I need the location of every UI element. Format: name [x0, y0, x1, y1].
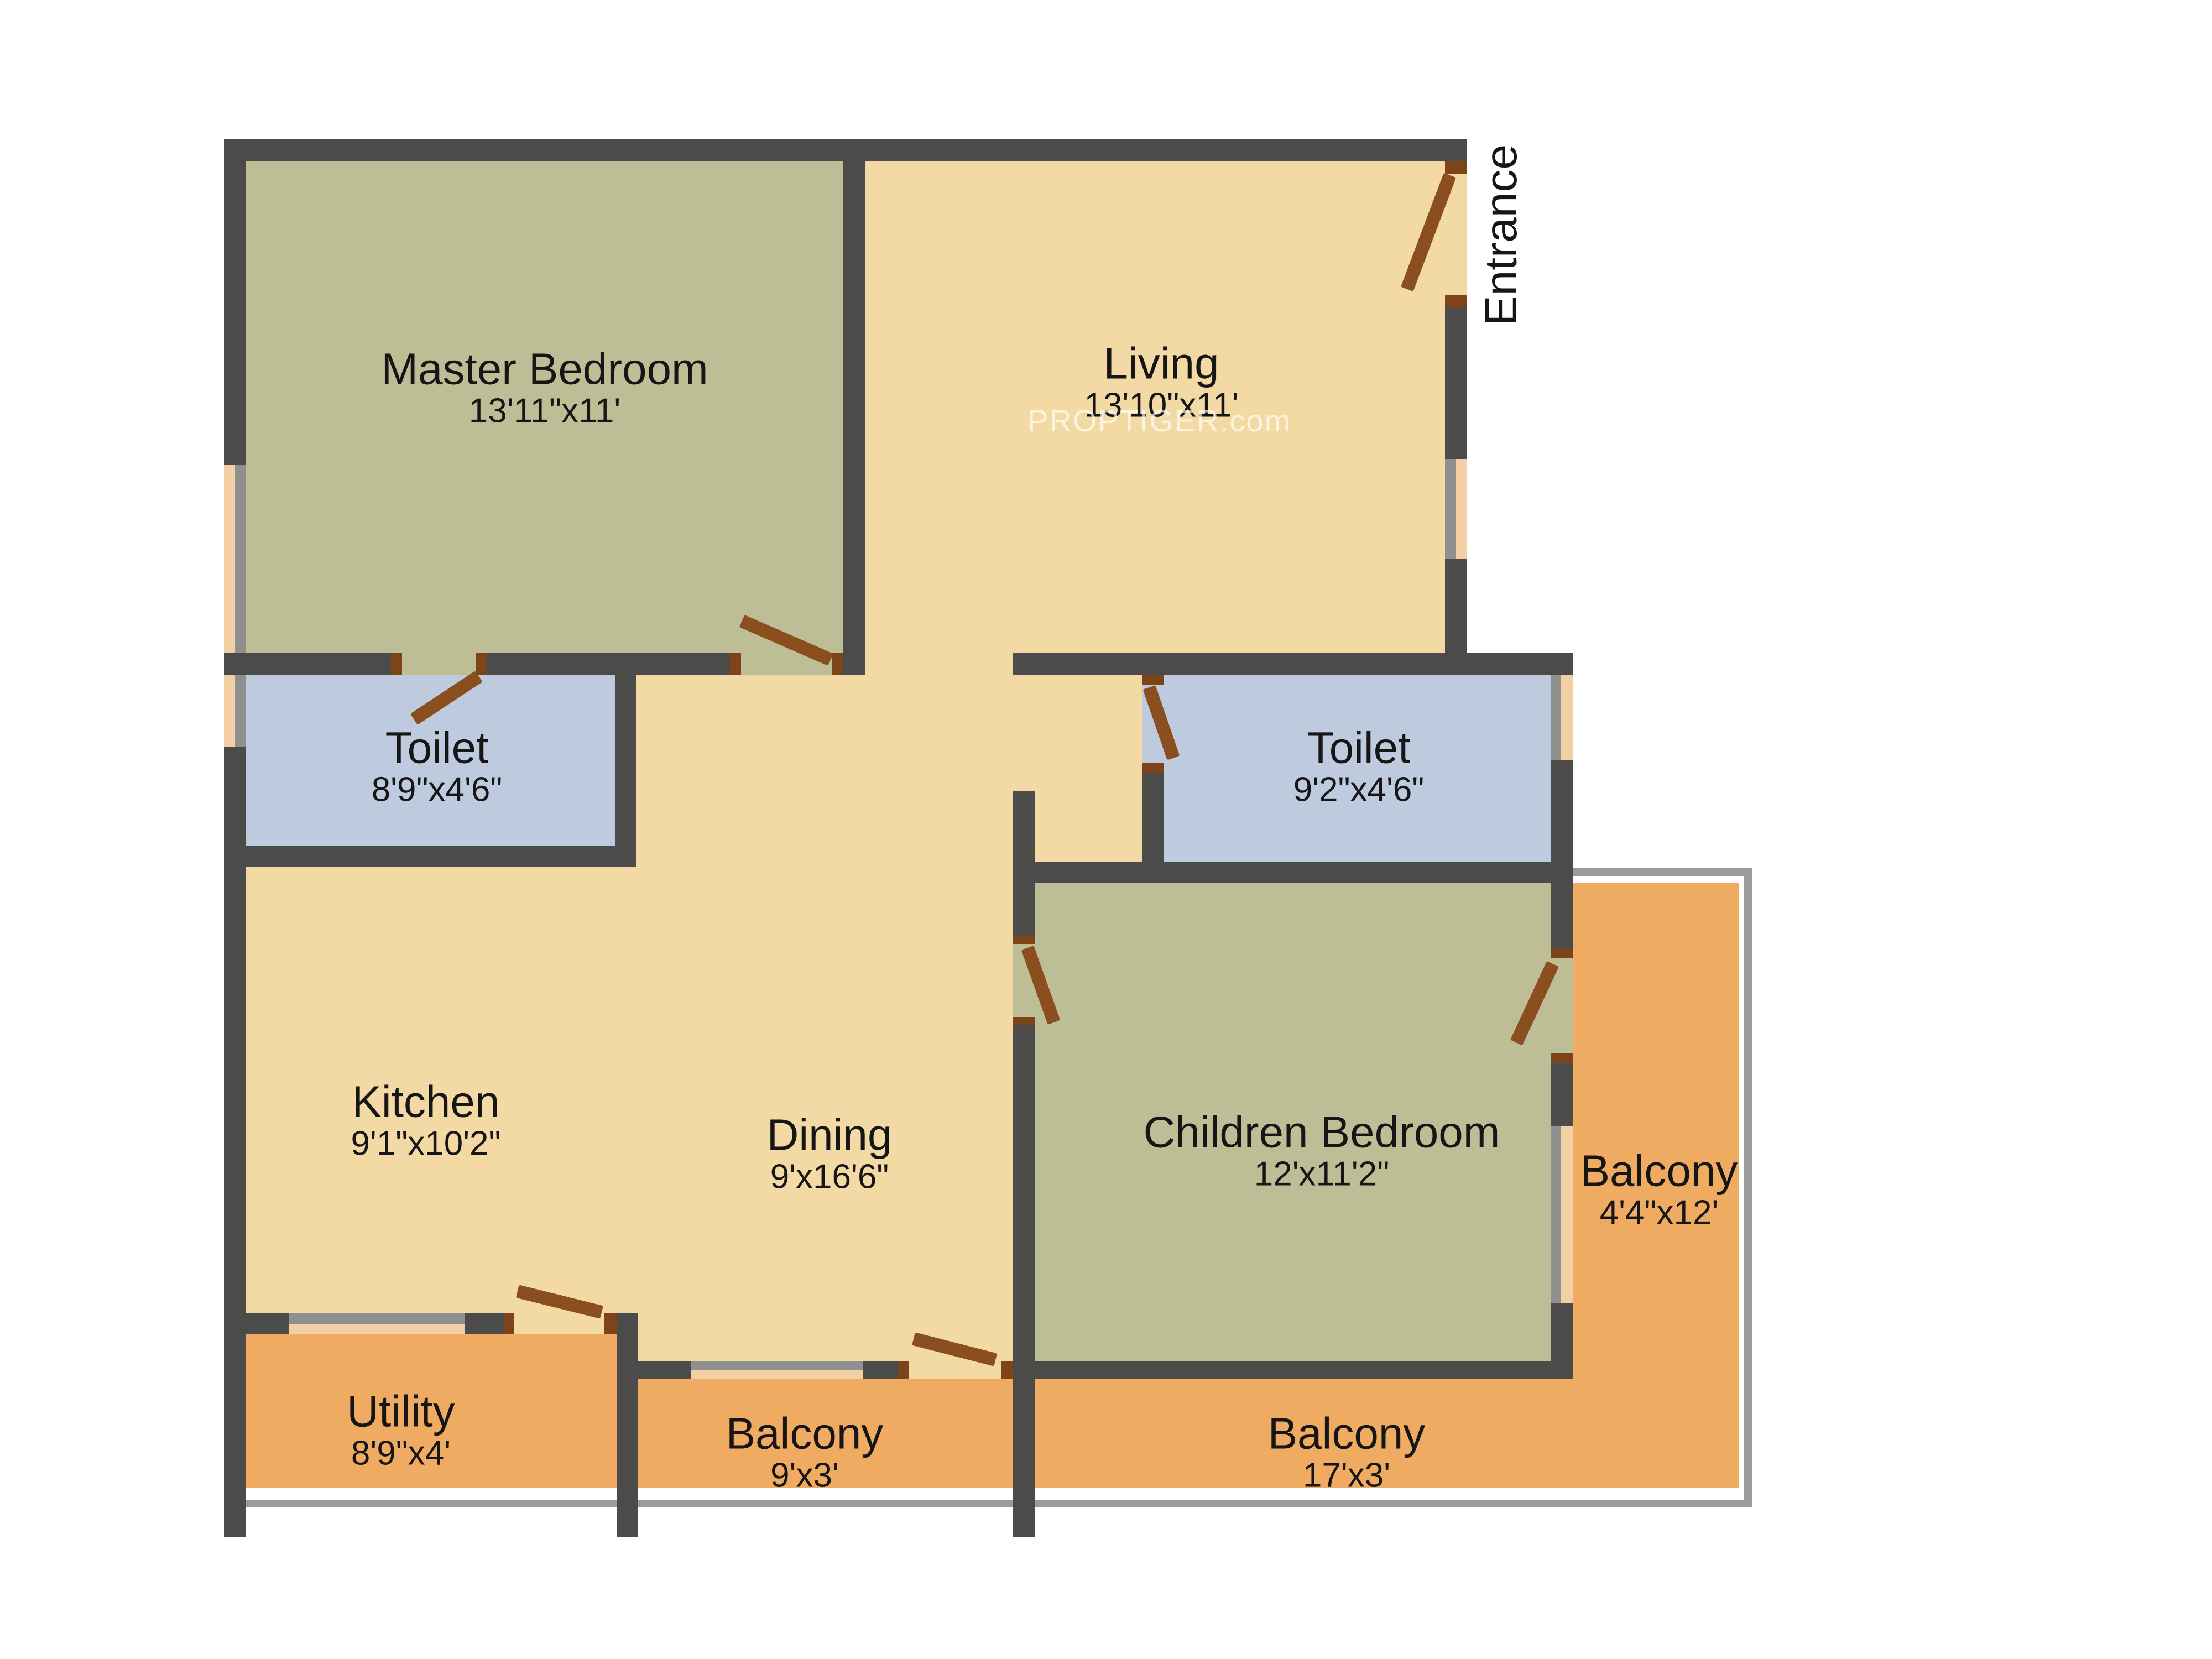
wall-toilet-right-bottom: [1013, 862, 1573, 883]
window-balcony-mid-inner: [691, 1361, 863, 1370]
wall-toilet-right-right: [1551, 760, 1573, 862]
jamb-master-b: [832, 653, 843, 675]
window-master-left-inner: [235, 465, 246, 653]
jamb-entrance-b: [1445, 295, 1467, 307]
railing-right: [1744, 868, 1752, 1507]
wall-master-bottom-b: [487, 653, 730, 675]
jamb-entrance-a: [1445, 161, 1467, 174]
window-master-left-outer: [224, 465, 235, 653]
window-toilet-right-inner: [1551, 675, 1561, 760]
label-toilet-right: Toilet 9'2"x4'6": [1293, 724, 1425, 807]
label-master-bedroom: Master Bedroom 13'11"x11': [381, 345, 708, 429]
window-living-right-inner: [1445, 459, 1456, 559]
railing-bottom: [224, 1500, 1752, 1507]
wall-toilet-left-bottom: [224, 846, 636, 867]
wall-kitchen-bottom-b: [465, 1313, 504, 1334]
wall-children-right-b: [1551, 1063, 1573, 1126]
floor-plan: Master Bedroom 13'11"x11' Living 13'10"x…: [0, 0, 2212, 1659]
window-toilet-left-inner: [235, 675, 246, 747]
wall-living-right-upper: [1445, 307, 1467, 459]
wall-master-right: [843, 161, 865, 675]
label-toilet-left: Toilet 8'9"x4'6": [372, 724, 503, 807]
label-children-bedroom: Children Bedroom 12'x11'2": [1144, 1108, 1500, 1192]
jamb-master-a: [730, 653, 741, 675]
label-balcony-mid: Balcony 9'x3': [726, 1410, 884, 1493]
jamb-dining-a: [898, 1361, 909, 1379]
jamb-toilet-right-b: [1142, 763, 1164, 773]
window-balcony-mid-outer: [691, 1370, 863, 1379]
wall-top: [224, 139, 1467, 161]
jamb-toilet-left-b: [476, 653, 487, 675]
watermark-proptiger: PROPTIGER.com: [1027, 403, 1291, 439]
wall-utility-right: [617, 1313, 638, 1537]
wall-dining-bottom-b: [863, 1361, 898, 1379]
window-children-right-inner: [1551, 1126, 1561, 1303]
label-entrance: Entrance: [1475, 144, 1527, 326]
wall-toilet-right-left: [1142, 773, 1164, 862]
label-dining: Dining 9'x16'6": [767, 1111, 893, 1194]
opening-toilet-left: [402, 653, 476, 675]
railing-top-right: [1573, 868, 1752, 876]
window-kitchen-bottom-inner: [289, 1313, 465, 1324]
wall-master-bottom-a: [224, 653, 391, 675]
window-toilet-left-outer: [224, 675, 235, 747]
wall-children-right-a: [1551, 883, 1573, 949]
jamb-toilet-left-a: [391, 653, 402, 675]
label-balcony-right: Balcony 4'4"x12': [1580, 1147, 1738, 1230]
jamb-dining-b: [1001, 1361, 1013, 1379]
label-utility: Utility 8'9"x4': [347, 1387, 455, 1471]
jamb-children-left-a: [1013, 936, 1035, 944]
jamb-children-right-a: [1551, 949, 1573, 958]
wall-children-left-lower: [1013, 1025, 1035, 1537]
jamb-kitchen-a: [504, 1313, 514, 1334]
wall-children-left-upper: [1013, 791, 1035, 936]
wall-toilet-left-right: [615, 675, 636, 867]
jamb-children-right-b: [1551, 1053, 1573, 1063]
window-kitchen-bottom-outer: [289, 1324, 465, 1334]
window-living-right-outer: [1456, 459, 1467, 559]
wall-left-upper: [224, 139, 246, 465]
jamb-children-left-b: [1013, 1017, 1035, 1025]
window-toilet-right-outer: [1561, 675, 1573, 760]
wall-kitchen-bottom-a: [224, 1313, 289, 1334]
window-children-right-outer: [1561, 1126, 1573, 1303]
jamb-toilet-right-a: [1142, 675, 1164, 685]
label-balcony-bottom: Balcony 17'x3': [1268, 1410, 1426, 1493]
label-kitchen: Kitchen 9'1"x10'2": [351, 1078, 500, 1161]
wall-dining-bottom-a: [638, 1361, 691, 1379]
jamb-kitchen-b: [604, 1313, 617, 1334]
wall-toilet-right-top: [1013, 653, 1573, 675]
wall-children-bottom: [1013, 1361, 1573, 1379]
